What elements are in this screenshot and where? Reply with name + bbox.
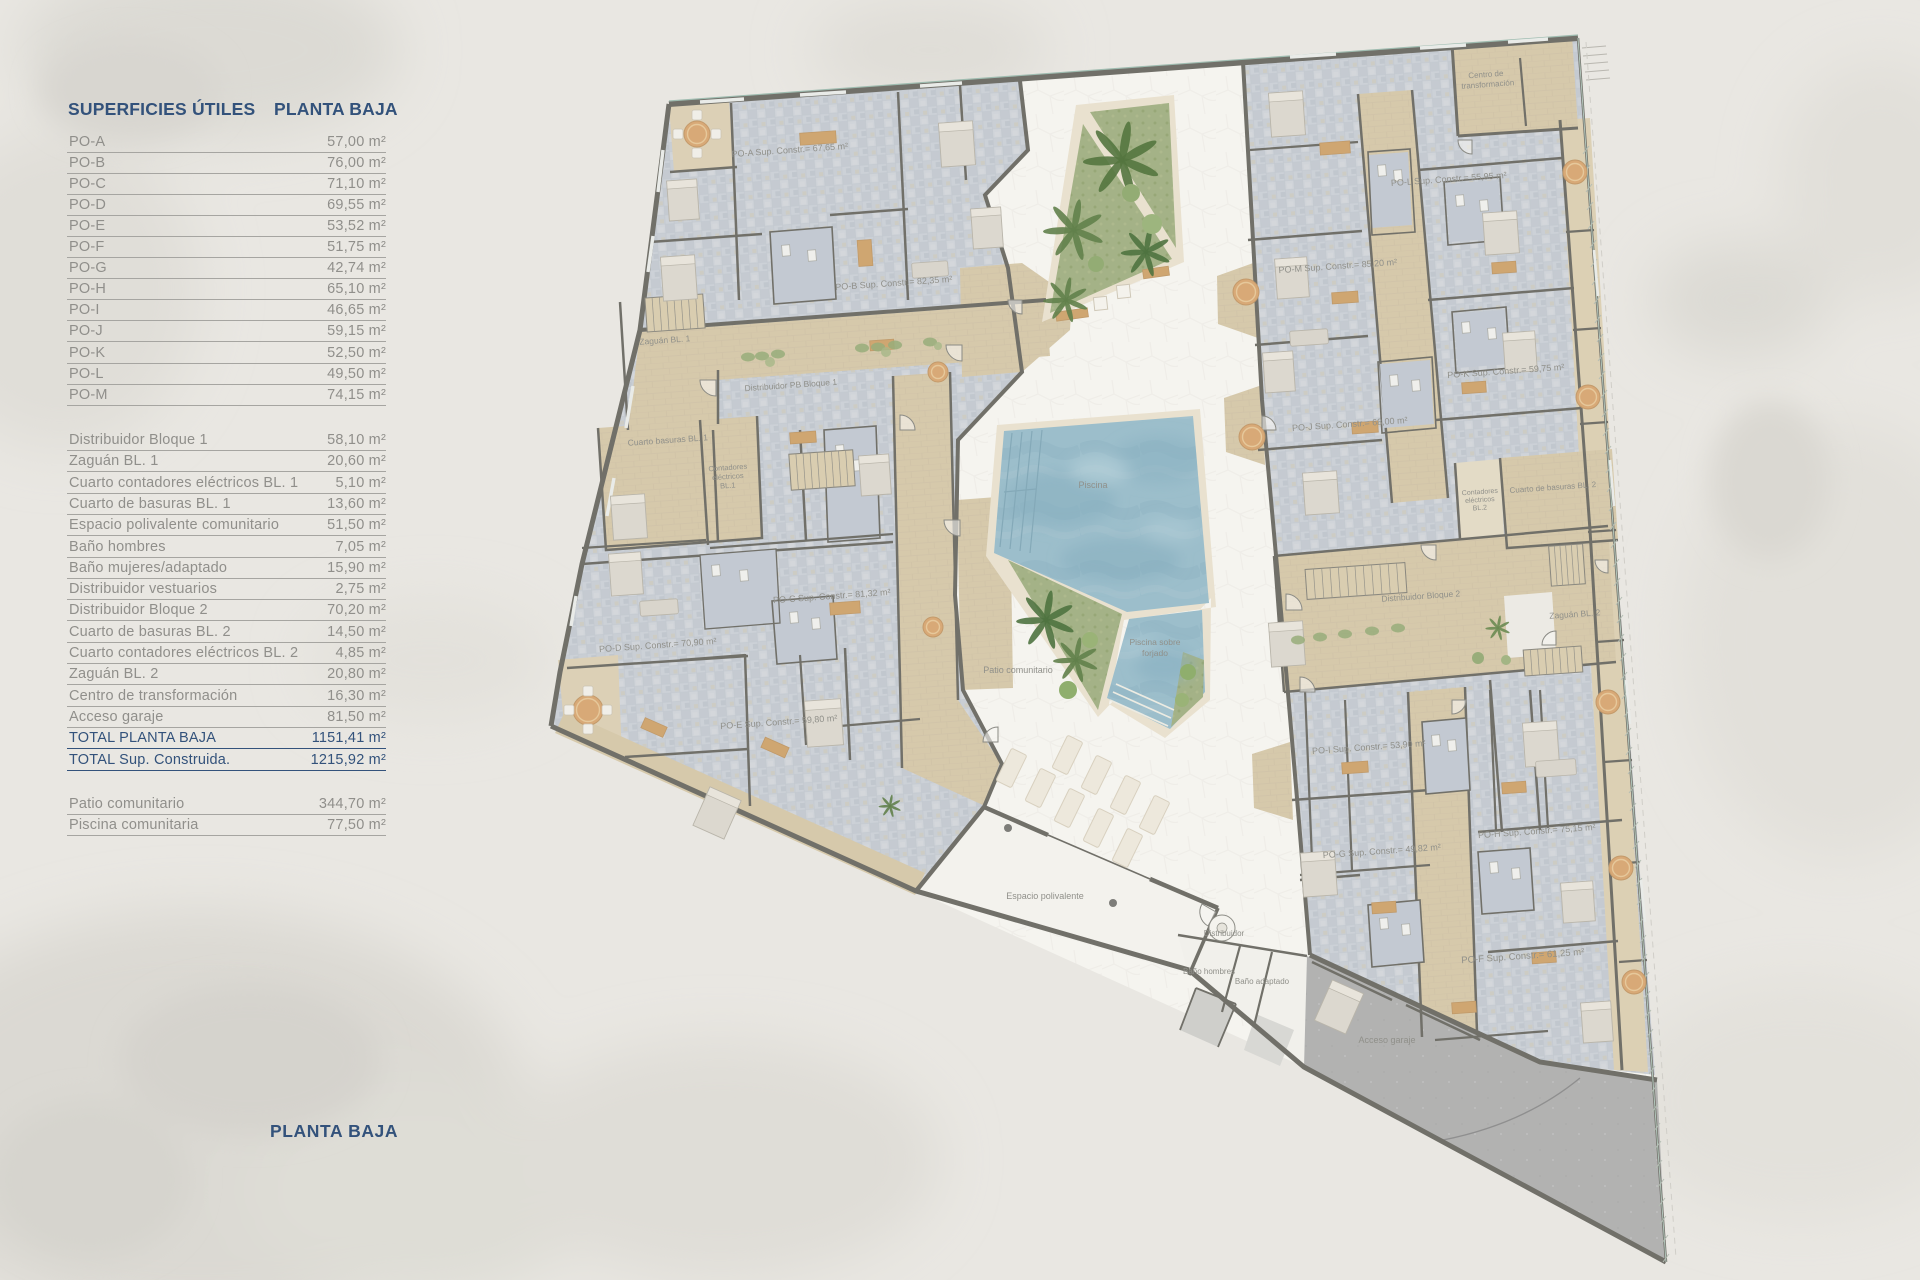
svg-text:Piscina sobre: Piscina sobre <box>1129 637 1180 647</box>
svg-text:Distribuidor: Distribuidor <box>1204 929 1245 938</box>
svg-text:BL.2: BL.2 <box>1472 505 1487 513</box>
svg-text:Piscina: Piscina <box>1078 480 1107 490</box>
svg-text:BL.1: BL.1 <box>720 480 736 490</box>
svg-text:forjado: forjado <box>1142 648 1168 658</box>
svg-text:Acceso garaje: Acceso garaje <box>1358 1035 1415 1045</box>
svg-text:Baño adaptado: Baño adaptado <box>1235 977 1290 986</box>
svg-text:Patio comunitario: Patio comunitario <box>983 665 1053 675</box>
svg-text:Baño hombres: Baño hombres <box>1183 967 1235 976</box>
svg-text:Espacio polivalente: Espacio polivalente <box>1006 891 1084 901</box>
